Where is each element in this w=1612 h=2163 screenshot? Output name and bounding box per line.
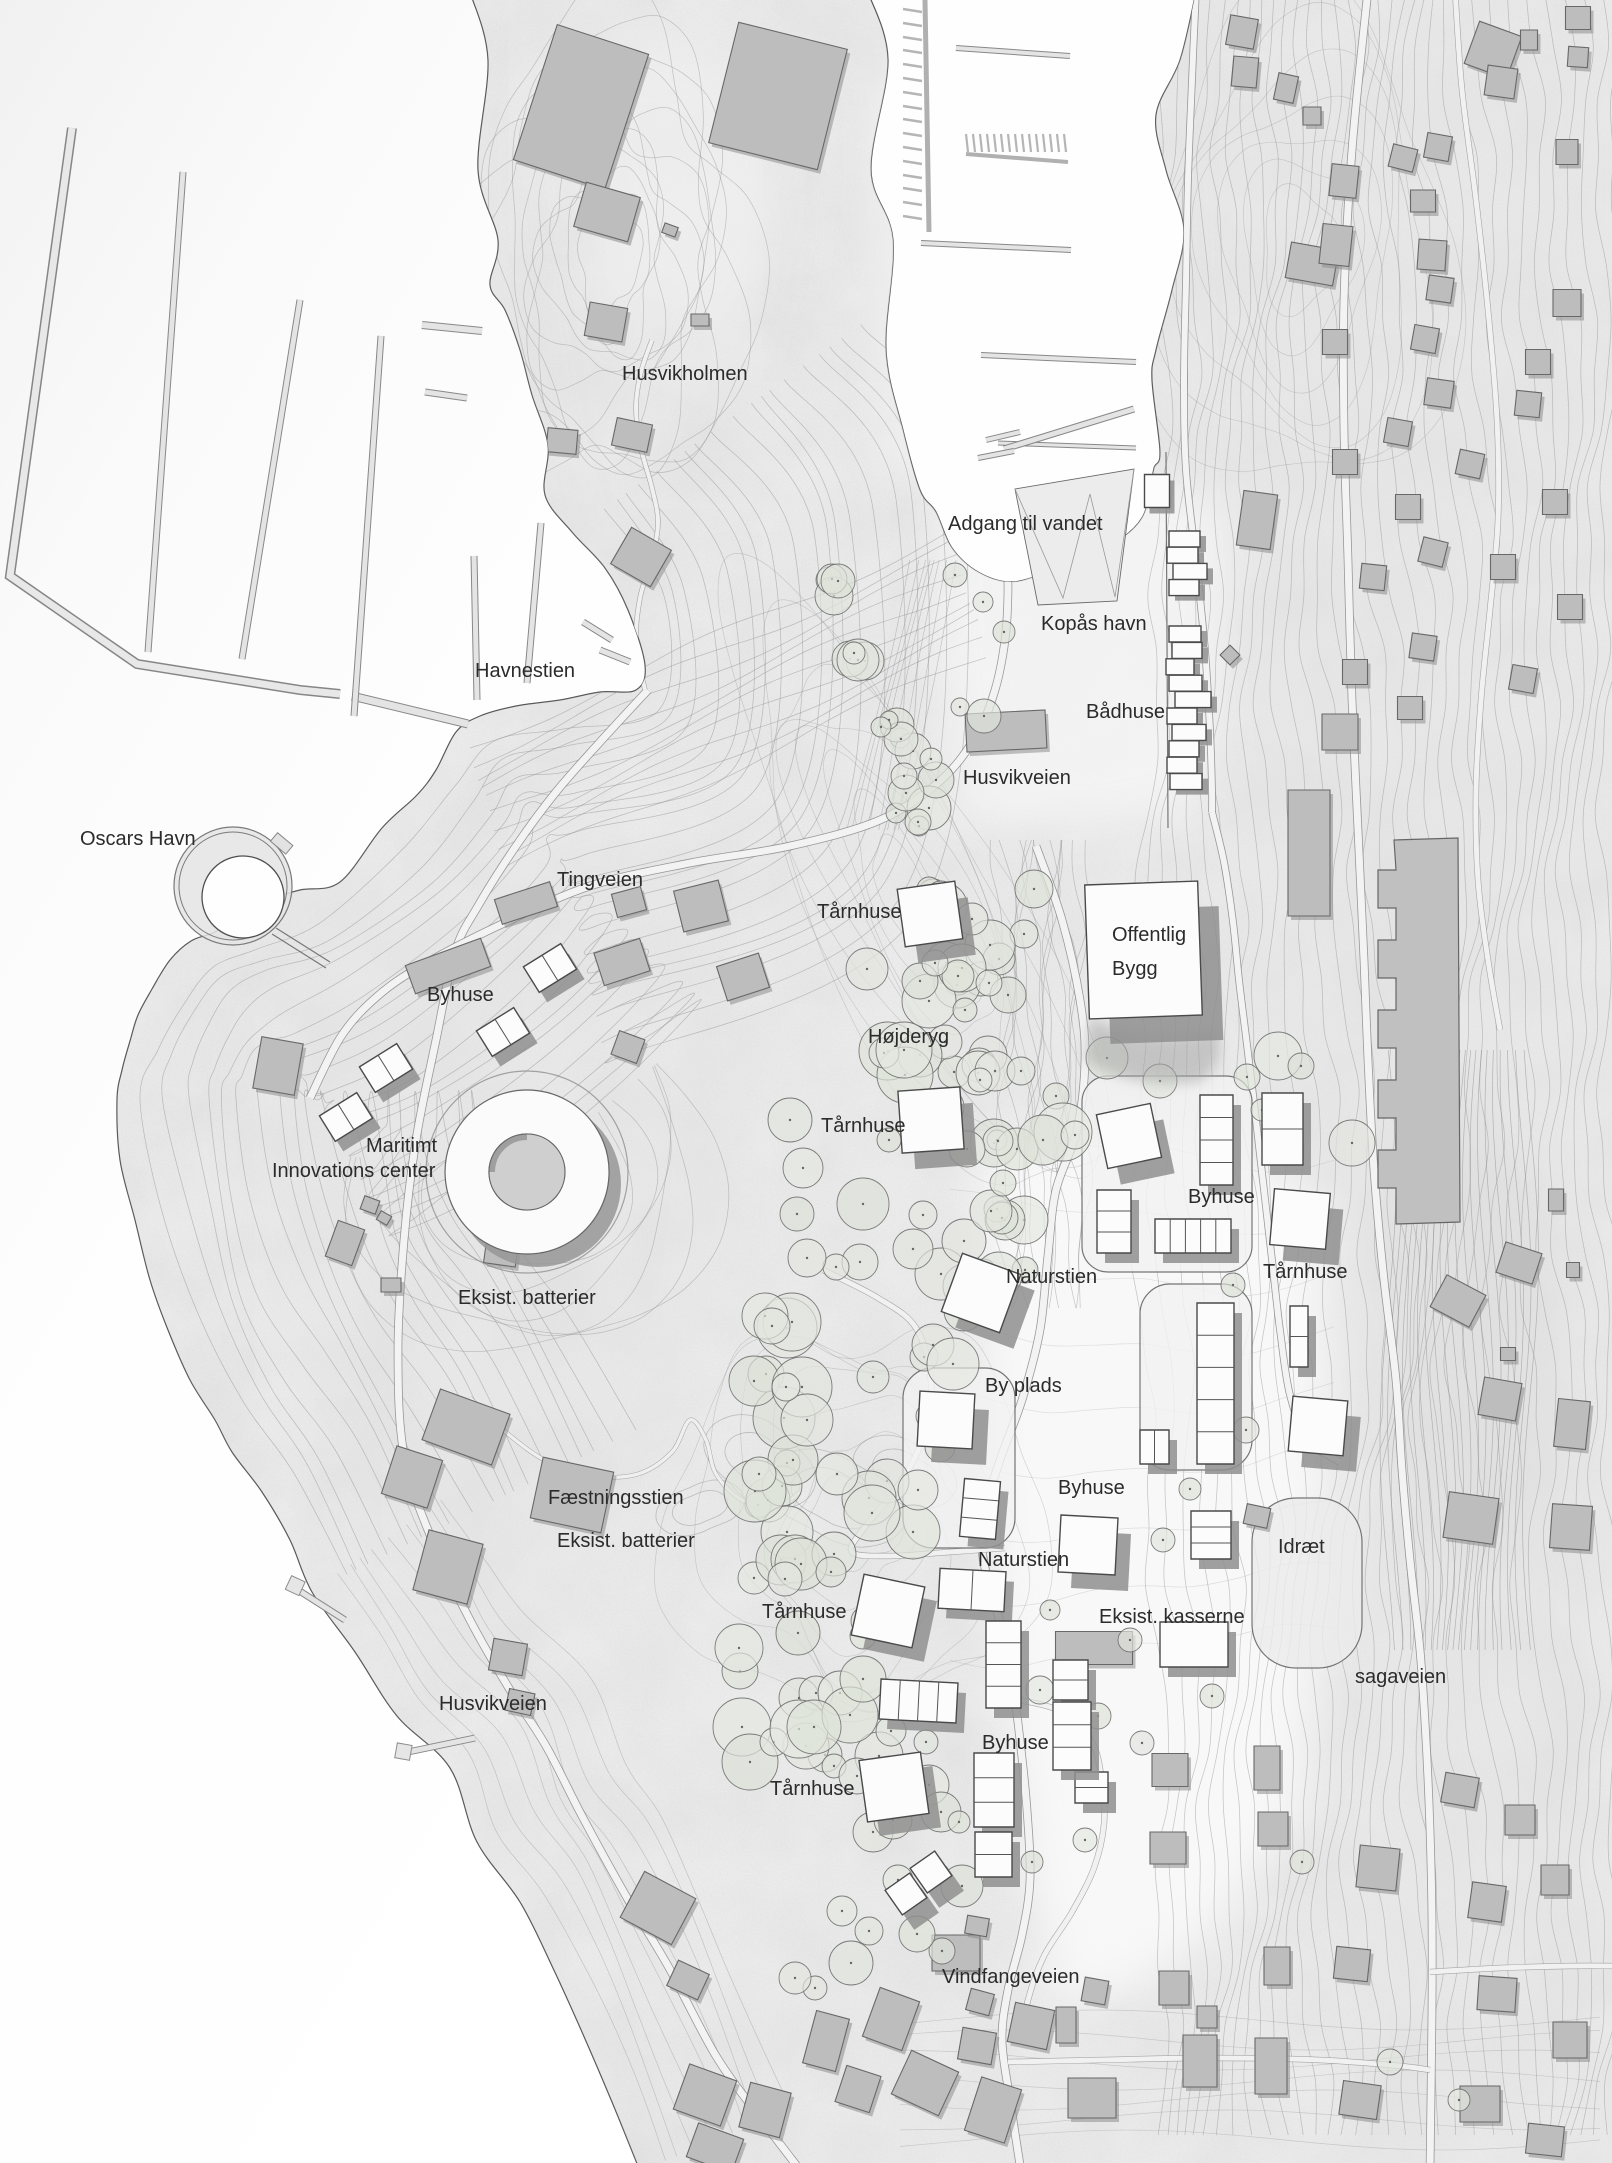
svg-text:Byhuse: Byhuse xyxy=(1058,1477,1125,1499)
svg-text:Byhuse: Byhuse xyxy=(1188,1186,1255,1208)
svg-text:Fæstningsstien: Fæstningsstien xyxy=(548,1487,684,1509)
svg-text:Eksist. batterier: Eksist. batterier xyxy=(557,1530,695,1552)
svg-text:Havnestien: Havnestien xyxy=(475,660,575,682)
svg-text:Tårnhuse: Tårnhuse xyxy=(1263,1261,1348,1283)
svg-text:Naturstien: Naturstien xyxy=(1006,1266,1097,1288)
svg-text:Adgang til vandet: Adgang til vandet xyxy=(948,513,1103,535)
svg-text:Offentlig: Offentlig xyxy=(1112,924,1186,946)
svg-text:Tårnhuse: Tårnhuse xyxy=(762,1601,847,1623)
svg-text:Kopås havn: Kopås havn xyxy=(1041,613,1147,635)
svg-text:Naturstien: Naturstien xyxy=(978,1549,1069,1571)
svg-text:By plads: By plads xyxy=(985,1375,1062,1397)
svg-text:Bygg: Bygg xyxy=(1112,958,1158,980)
svg-text:Husvikholmen: Husvikholmen xyxy=(622,363,748,385)
svg-text:Idræt: Idræt xyxy=(1278,1536,1325,1558)
svg-text:Oscars Havn: Oscars Havn xyxy=(80,828,196,850)
svg-text:Tårnhuse: Tårnhuse xyxy=(770,1778,855,1800)
svg-text:Byhuse: Byhuse xyxy=(427,984,494,1006)
svg-text:Bådhuse: Bådhuse xyxy=(1086,701,1165,723)
svg-text:Maritimt: Maritimt xyxy=(366,1135,438,1157)
svg-text:sagaveien: sagaveien xyxy=(1355,1666,1446,1688)
svg-text:Højderyg: Højderyg xyxy=(868,1026,949,1048)
svg-text:Tårnhuse: Tårnhuse xyxy=(817,901,902,923)
svg-text:Byhuse: Byhuse xyxy=(982,1732,1049,1754)
svg-text:Husvikveien: Husvikveien xyxy=(963,767,1071,789)
svg-text:Tårnhuse: Tårnhuse xyxy=(821,1115,906,1137)
svg-text:Vindfangeveien: Vindfangeveien xyxy=(942,1966,1080,1988)
svg-text:Eksist. batterier: Eksist. batterier xyxy=(458,1287,596,1309)
svg-text:Innovations center: Innovations center xyxy=(272,1160,436,1182)
svg-text:Tingveien: Tingveien xyxy=(557,869,643,891)
svg-text:Husvikveien: Husvikveien xyxy=(439,1693,547,1715)
svg-text:Eksist. kasserne: Eksist. kasserne xyxy=(1099,1606,1245,1628)
